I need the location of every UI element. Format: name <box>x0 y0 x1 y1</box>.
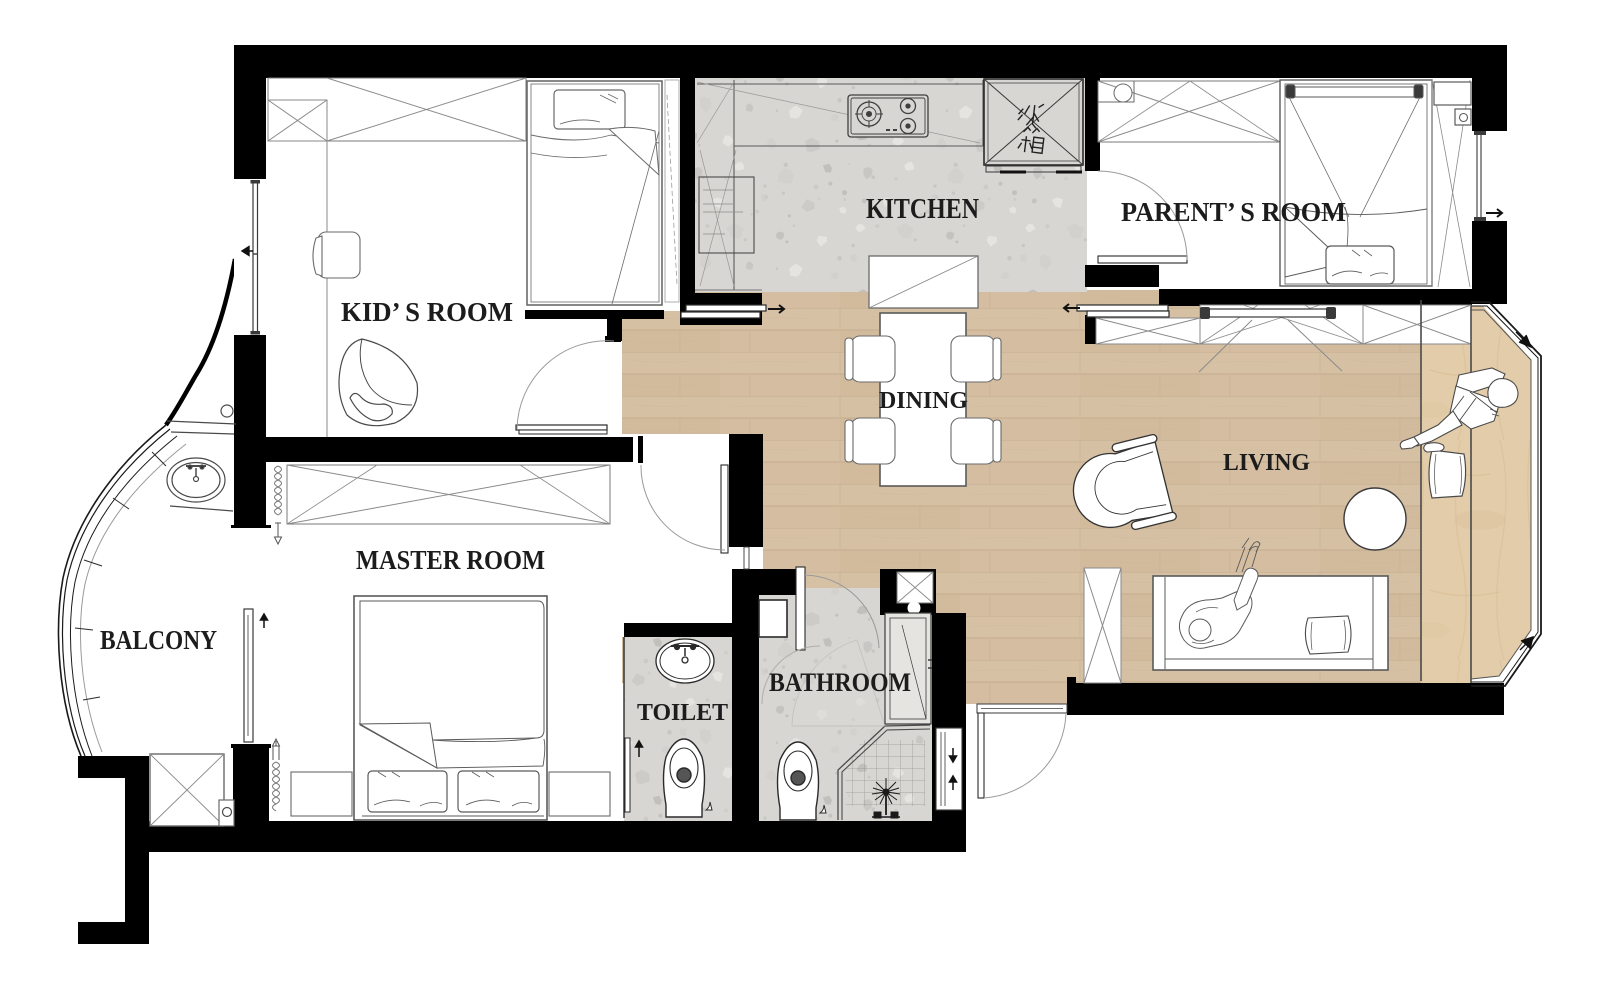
svg-text:MASTER ROOM: MASTER ROOM <box>356 545 545 575</box>
svg-text:KITCHEN: KITCHEN <box>866 193 979 225</box>
svg-text:BATHROOM: BATHROOM <box>769 668 911 697</box>
svg-text:KID’ S ROOM: KID’ S ROOM <box>341 297 513 327</box>
svg-text:LIVING: LIVING <box>1223 450 1310 476</box>
svg-text:PARENT’ S ROOM: PARENT’ S ROOM <box>1121 197 1346 227</box>
svg-text:TOILET: TOILET <box>637 700 728 726</box>
svg-text:DINING: DINING <box>879 388 968 414</box>
svg-text:BALCONY: BALCONY <box>100 625 217 655</box>
